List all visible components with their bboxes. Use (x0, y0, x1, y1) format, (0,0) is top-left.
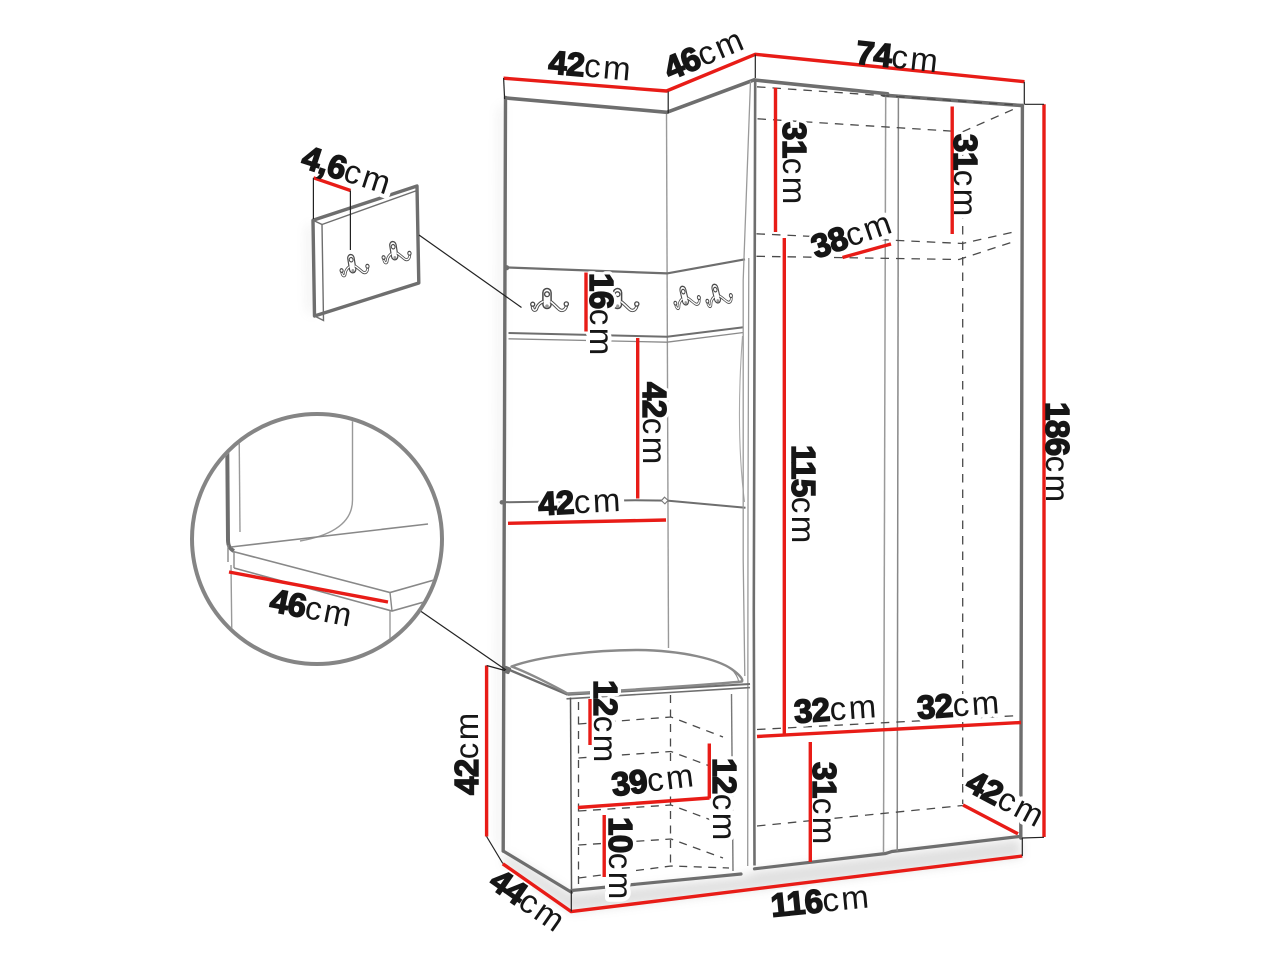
svg-text:115cm: 115cm (785, 445, 822, 546)
svg-text:186cm: 186cm (1039, 402, 1076, 505)
svg-text:31cm: 31cm (776, 122, 813, 207)
svg-text:42cm: 42cm (537, 481, 624, 522)
svg-text:42cm: 42cm (448, 710, 485, 795)
svg-text:16cm: 16cm (583, 273, 620, 358)
svg-text:10cm: 10cm (602, 817, 639, 902)
svg-text:32cm: 32cm (793, 687, 880, 730)
svg-text:31cm: 31cm (947, 134, 984, 219)
svg-text:42cm: 42cm (636, 382, 673, 467)
svg-text:4,6cm: 4,6cm (297, 138, 397, 202)
svg-text:12cm: 12cm (587, 680, 624, 765)
svg-text:12cm: 12cm (706, 758, 743, 843)
svg-text:31cm: 31cm (806, 762, 843, 847)
svg-text:32cm: 32cm (916, 683, 1003, 726)
svg-text:42cm: 42cm (547, 43, 635, 87)
svg-text:74cm: 74cm (854, 34, 942, 80)
svg-text:42cm: 42cm (960, 763, 1052, 835)
